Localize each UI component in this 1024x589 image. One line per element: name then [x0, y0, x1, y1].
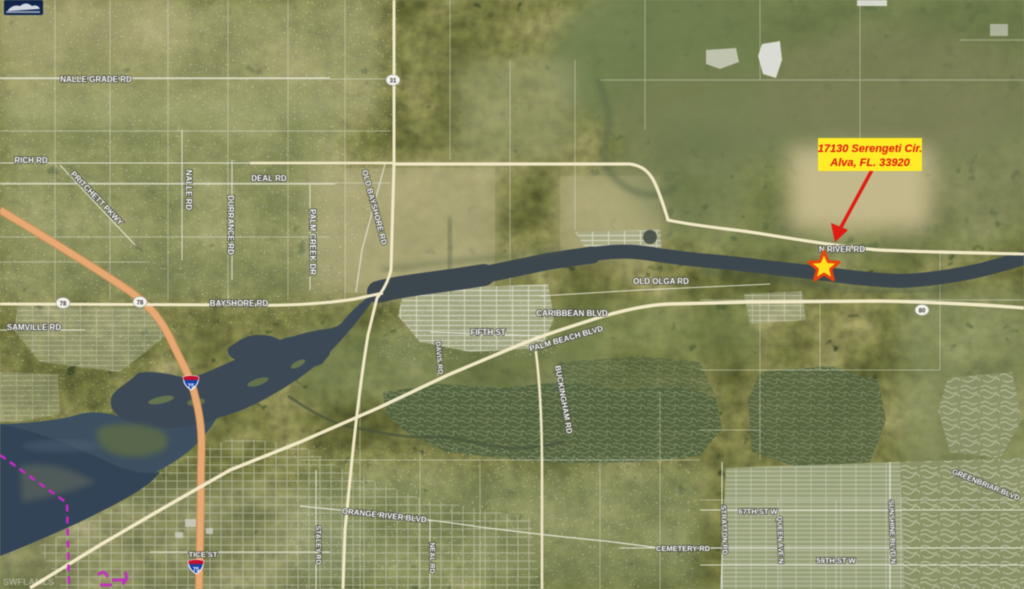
svg-text:78: 78: [60, 301, 67, 307]
svg-text:80: 80: [919, 308, 926, 314]
svg-text:FIFTH ST: FIFTH ST: [470, 328, 505, 337]
svg-text:BAYSHORE RD: BAYSHORE RD: [210, 299, 269, 308]
svg-text:NEAL RD: NEAL RD: [428, 543, 435, 574]
svg-text:NALLE GRADE RD: NALLE GRADE RD: [60, 75, 132, 84]
svg-text:CARIBBEAN BLVD: CARIBBEAN BLVD: [536, 309, 608, 318]
svg-text:RICH RD: RICH RD: [14, 156, 48, 165]
svg-text:75: 75: [193, 568, 200, 574]
svg-text:STALEY RD: STALEY RD: [314, 525, 321, 564]
svg-text:PALM CREEK DR: PALM CREEK DR: [308, 209, 317, 275]
svg-text:Alva, FL. 33920: Alva, FL. 33920: [829, 157, 910, 169]
svg-text:31: 31: [390, 78, 397, 84]
svg-text:DURRANCE RD: DURRANCE RD: [226, 195, 235, 255]
svg-text:75: 75: [187, 383, 195, 390]
svg-text:78: 78: [137, 300, 144, 306]
svg-text:CEMETERY RD: CEMETERY RD: [656, 544, 711, 553]
svg-text:59TH ST W: 59TH ST W: [816, 556, 856, 565]
svg-text:TICE ST: TICE ST: [189, 550, 218, 559]
svg-text:67TH ST W: 67TH ST W: [738, 507, 778, 516]
svg-text:17130 Serengeti Cir.: 17130 Serengeti Cir.: [818, 143, 923, 155]
svg-text:SWFLAMLS: SWFLAMLS: [3, 577, 54, 587]
svg-text:DEAL RD: DEAL RD: [251, 174, 287, 183]
svg-text:SAMVILLE RD: SAMVILLE RD: [7, 323, 61, 332]
svg-text:NALLE RD: NALLE RD: [184, 170, 193, 211]
svg-text:OLD OLGA RD: OLD OLGA RD: [633, 277, 689, 286]
